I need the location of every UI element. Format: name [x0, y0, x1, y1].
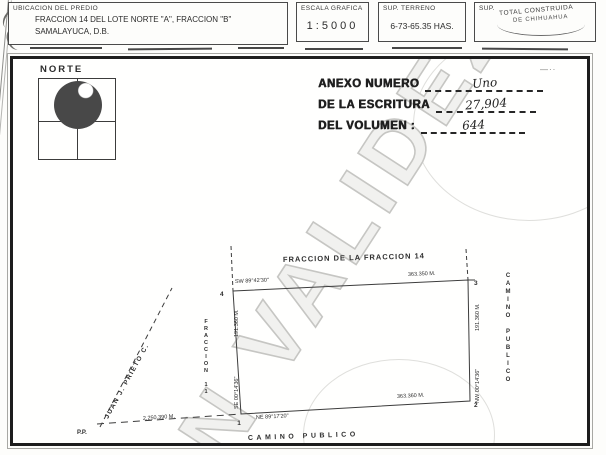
drawing-frame: SIN VALIDEZ NORTE ANEXO NUMEROUno DE LA …: [10, 56, 590, 446]
annex-volumen-label: DEL VOLUMEN :: [318, 120, 415, 132]
top-bearing: SW 89°42'30": [235, 278, 269, 285]
right-distance: 191.360 M.: [475, 303, 481, 331]
location-label: UBICACION DEL PREDIO: [13, 5, 98, 12]
annex-escritura-value: 27,904: [465, 96, 508, 113]
area-label: FRACCION DE LA FRACCION 14: [283, 251, 425, 264]
left-bearing: SE 00°14'36": [234, 377, 240, 409]
annex-row-escritura: DE LA ESCRITURA27,904: [318, 93, 580, 114]
neighbor-fraccion-11-label: FRACCION 11: [203, 319, 209, 419]
surface-label: SUP. TERRENO: [383, 5, 436, 12]
location-line2: SAMALAYUCA, D.B.: [35, 27, 109, 36]
scan-mark: [128, 48, 212, 51]
scan-mark: [392, 47, 462, 49]
annex-volumen-value: 644: [461, 117, 485, 133]
bottom-distance: 363.360 M.: [397, 393, 425, 400]
construction-label: SUP.: [479, 5, 495, 12]
corner-4: 4: [220, 291, 224, 298]
top-distance: 363.350 M.: [408, 271, 436, 278]
annex-stamp: ANEXO NUMEROUno DE LA ESCRITURA27,904 DE…: [318, 72, 580, 135]
scanned-plat-document: UBICACION DEL PREDIO FRACCION 14 DEL LOT…: [0, 0, 606, 455]
extension-line: [466, 249, 468, 280]
annex-numero-label: ANEXO NUMERO: [318, 78, 419, 90]
location-line1: FRACCION 14 DEL LOTE NORTE "A", FRACCION…: [35, 15, 231, 24]
scan-mark: [238, 47, 284, 49]
surface-value: 6-73-65.35 HAS.: [379, 21, 465, 31]
extension-line: [231, 246, 233, 291]
construction-area-box: SUP. TOTAL CONSTRUIDA DE CHIHUAHUA: [474, 2, 596, 42]
bottom-bearing: NE 89°17'20": [256, 413, 289, 421]
surface-area-box: SUP. TERRENO 6-73-65.35 HAS.: [378, 2, 466, 42]
scan-mark: [482, 48, 568, 51]
corner-3: 3: [474, 280, 478, 287]
parcel-polygon: [233, 280, 470, 414]
left-distance: 191.360 M.: [234, 309, 240, 337]
road-south-label: CAMINO PUBLICO: [248, 431, 359, 442]
scale-box: ESCALA GRAFICA 1:5000: [296, 2, 369, 42]
neighbor-owner-label: JUAN J. PRIETO C.: [104, 343, 151, 420]
scale-label: ESCALA GRAFICA: [301, 5, 363, 12]
annex-numero-value: Uno: [471, 75, 497, 91]
corner-1: 1: [237, 420, 241, 427]
scale-value: 1:5000: [297, 20, 368, 32]
annex-escritura-label: DE LA ESCRITURA: [318, 99, 430, 111]
pp-distance: 2,250.390 M.: [143, 414, 176, 422]
annex-row-volumen: DEL VOLUMEN :644: [318, 114, 580, 135]
stamp-arc: [497, 13, 585, 36]
road-east-label: CAMINO PUBLICO: [505, 273, 511, 393]
right-bearing: NW 00°14'36": [475, 369, 481, 403]
property-location-box: UBICACION DEL PREDIO FRACCION 14 DEL LOT…: [8, 2, 288, 45]
annex-row-numero: ANEXO NUMEROUno: [318, 72, 580, 93]
scan-mark: [305, 48, 363, 50]
scan-mark: [30, 47, 102, 49]
pp-label: P.P.: [77, 430, 87, 436]
